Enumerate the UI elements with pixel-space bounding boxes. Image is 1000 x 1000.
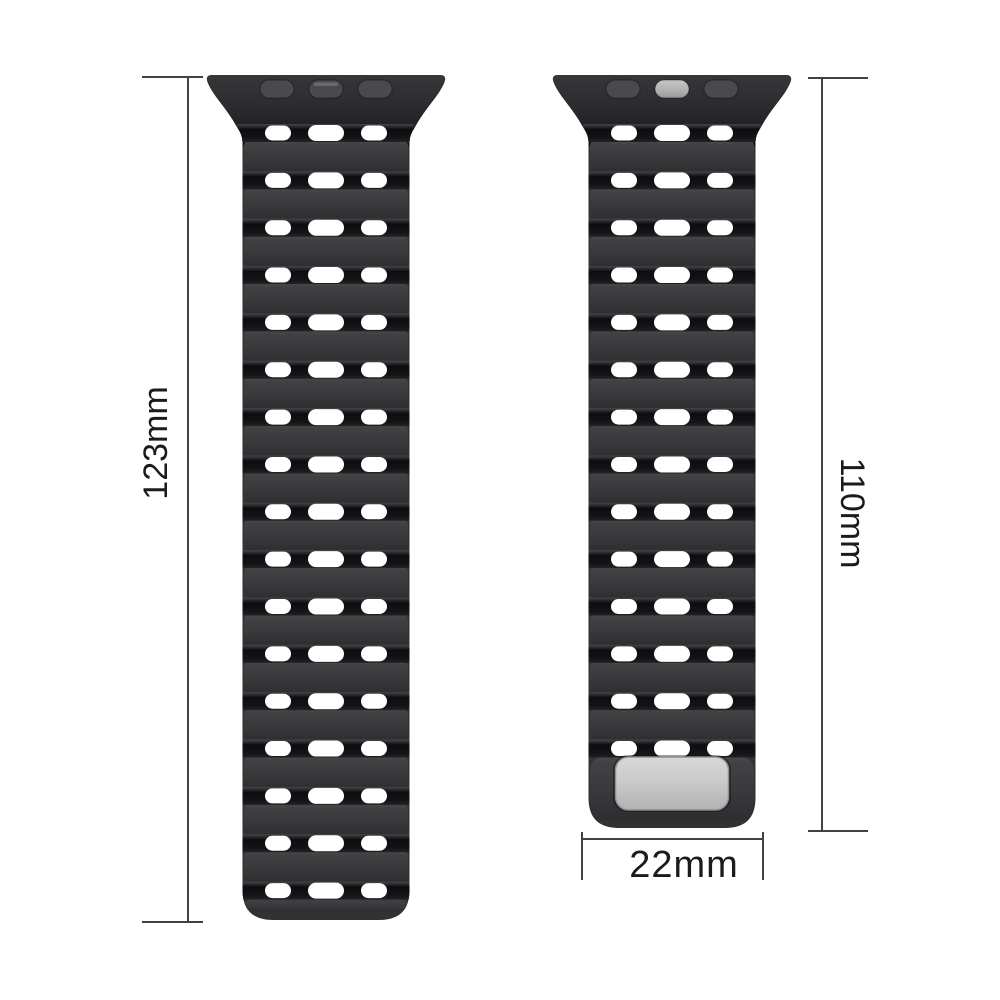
right-dimension-line [821,78,823,832]
left-dimension-tick-top [142,76,203,78]
right-dimension-tick-bottom [808,830,868,832]
width-dimension-line [582,838,763,840]
product-diagram: 123mm 110mm 22mm [0,0,1000,1000]
width-dimension-tick-left [581,832,583,880]
watch-strap-short [550,72,794,834]
right-length-label: 110mm [832,438,872,588]
watch-strap-long [204,72,448,924]
left-length-label: 123mm [136,368,176,518]
left-dimension-line [187,77,189,923]
left-dimension-tick-bottom [142,921,203,923]
width-label: 22mm [594,845,774,885]
right-dimension-tick-top [808,77,868,79]
